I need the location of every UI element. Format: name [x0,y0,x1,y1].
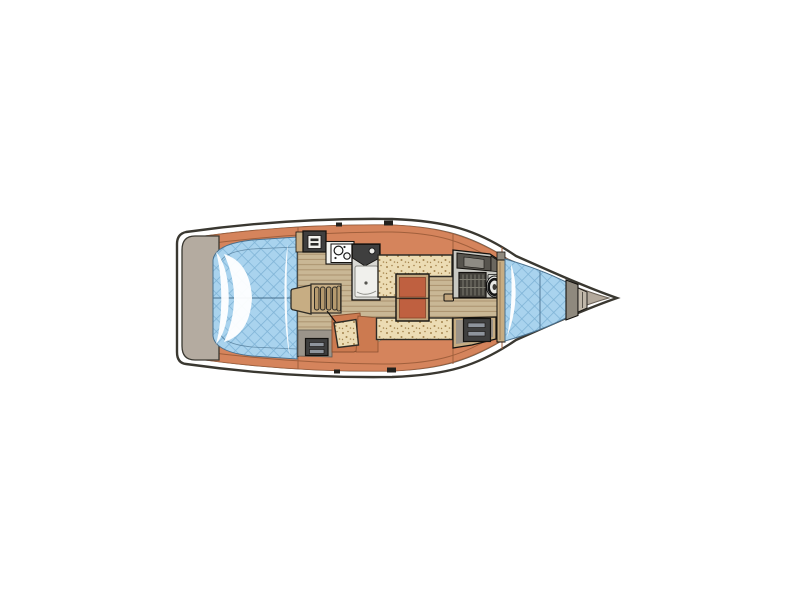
floor-hatch-handle [444,294,454,301]
berth-foot-locker [566,280,578,320]
faucet-dot [343,246,345,248]
faucet-dot [334,257,336,259]
deck-fitting [336,223,342,227]
shower-grate [459,273,486,298]
deck-fitting [334,370,340,374]
deck-fitting [387,368,396,373]
berth-head-trim [497,260,505,342]
companionway-landing [291,285,311,314]
galley-cabinet [296,232,303,252]
aft-cabinet-column [356,316,378,352]
table-leaf-top [400,278,426,298]
v-berth-cabin [497,252,587,342]
deck-fitting [384,221,393,226]
forward-head [453,250,503,298]
galley-sink [331,244,353,263]
forward-locker [464,319,491,342]
head-sink [369,248,375,254]
toilet-drain [493,284,497,290]
drain-dot [364,281,367,284]
cockpit [213,237,297,359]
aft-seat-cushion [334,320,359,348]
companionway-steps [291,284,341,314]
saloon-table [396,274,429,321]
aft-head [352,244,380,300]
ladder-treads [315,286,341,311]
stove-icon [308,236,321,249]
boat-floor-plan [0,0,800,600]
table-leaf-bottom [400,299,426,318]
